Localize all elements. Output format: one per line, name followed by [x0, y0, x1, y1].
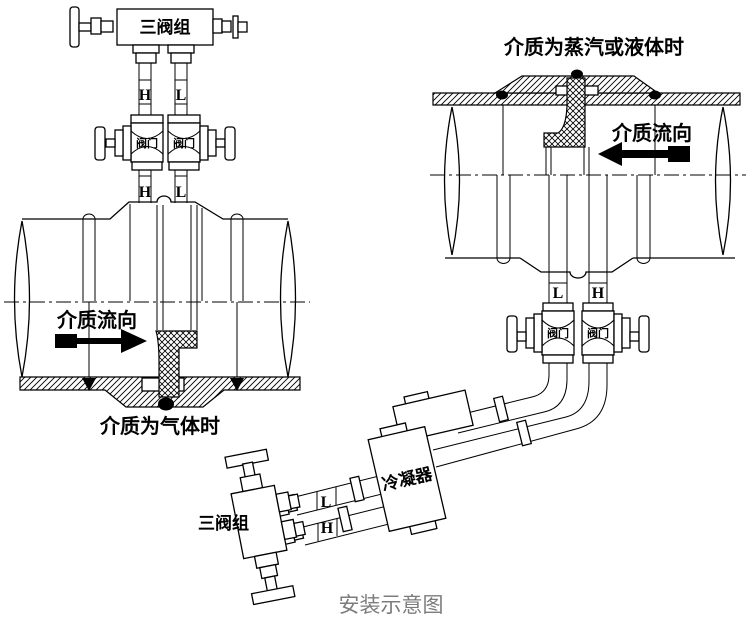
tap-label-h: H [592, 285, 605, 302]
handwheel-icon [225, 127, 235, 160]
diagram-caption: 安装示意图 [339, 593, 444, 617]
pipe-label-l: L [321, 494, 332, 511]
steam-flow-label: 介质流向 [611, 121, 692, 145]
valve-label: 阀门 [173, 136, 195, 150]
gas-caption: 介质为气体时 [99, 414, 220, 438]
weld-dot-icon [158, 398, 174, 411]
installation-diagram: 三阀组 H L 阀门 [0, 0, 750, 626]
handwheel-icon [95, 127, 105, 160]
handwheel-icon [507, 316, 517, 352]
pipe-label-h: H [321, 520, 334, 537]
valve-label: 阀门 [587, 326, 609, 340]
steam-title: 介质为蒸汽或液体时 [503, 35, 684, 59]
tap-label-l: L [176, 184, 187, 201]
weld-dot-icon [496, 91, 508, 100]
tap-label-l: L [553, 285, 564, 302]
steam-manifold-label: 三阀组 [198, 513, 249, 533]
valve-label: 阀门 [136, 136, 158, 150]
tap-label-h: H [139, 184, 152, 201]
handwheel-icon [233, 16, 238, 38]
handwheel-icon [70, 7, 79, 47]
tap-label-l: L [176, 87, 187, 104]
gas-manifold-label: 三阀组 [140, 17, 191, 37]
weld-dot-icon [649, 91, 661, 100]
valve-label: 阀门 [547, 326, 569, 340]
weld-dot-icon [571, 70, 583, 79]
tap-label-h: H [139, 87, 152, 104]
gas-flow-label: 介质流向 [56, 308, 137, 332]
handwheel-icon [639, 316, 649, 352]
